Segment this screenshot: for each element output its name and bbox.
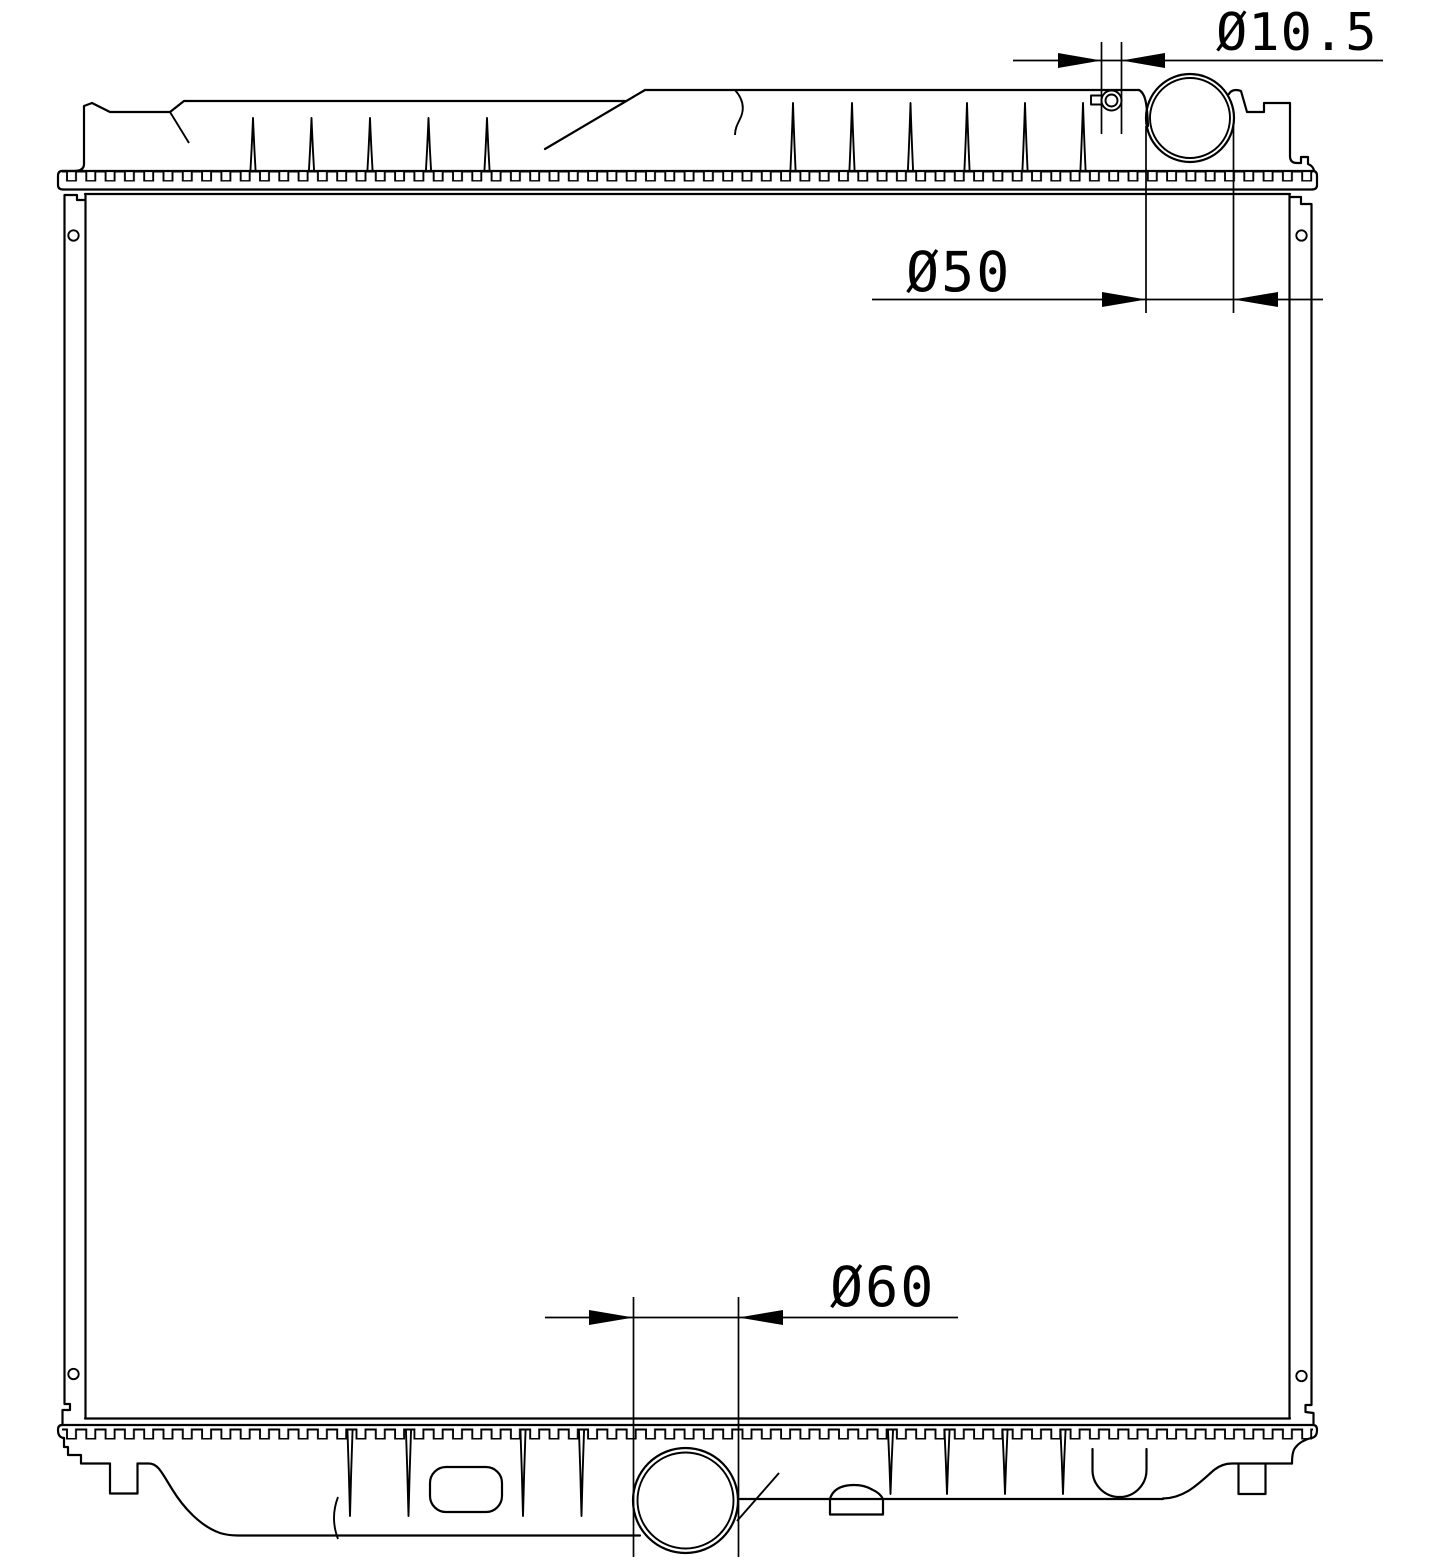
dimension-arrow-left <box>589 1310 634 1325</box>
dimension-arrow-left <box>1058 53 1102 68</box>
dimension-arrow-right <box>739 1310 784 1325</box>
bottom-tank-parting-curve <box>334 1497 338 1539</box>
overflow-hole-circle-outer <box>1102 91 1122 111</box>
u-pocket <box>1093 1449 1147 1497</box>
bottom-tank-right-bottom-curve <box>1163 1464 1292 1499</box>
top-tank-ribs-left <box>250 118 489 171</box>
outlet-port-circle-outer <box>633 1448 738 1553</box>
top-tank-mold-line <box>170 112 189 143</box>
top-tank-left-profile <box>84 101 625 164</box>
bracket-left-profile <box>63 195 86 1424</box>
top-tank-parting-curve <box>735 90 743 135</box>
bottom-tank-left-bottom-curve <box>138 1464 641 1536</box>
dimension-label-overflow-hole: Ø10.5 <box>1216 3 1378 63</box>
bottom-tank-oval-hole <box>430 1467 502 1512</box>
outlet-port-circle-inner <box>638 1453 734 1549</box>
radiator-drawing: Ø10.5 Ø50 Ø60 <box>0 0 1445 1563</box>
bracket-right-top-hole <box>1296 230 1306 240</box>
overflow-tab <box>1091 96 1101 105</box>
top-crimp-teeth <box>62 171 1313 182</box>
radiator-core <box>85 194 1290 1419</box>
side-bracket-right <box>1290 197 1314 1424</box>
bottom-tank-right-foot <box>1239 1464 1266 1495</box>
bracket-left-bottom-hole <box>68 1369 78 1379</box>
dimension-arrow-left <box>1102 292 1146 307</box>
top-tank <box>58 74 1317 190</box>
bottom-tank-right-profile <box>1292 1438 1311 1464</box>
bottom-tank <box>58 1425 1317 1553</box>
dimension-arrow-right <box>1234 292 1279 307</box>
drawing-sheet: Ø10.5 Ø50 Ø60 <box>0 0 1445 1563</box>
bracket-right-profile <box>1290 197 1314 1424</box>
bottom-tank-left-profile <box>64 1438 110 1464</box>
outlet-port-diagonal-line <box>737 1473 779 1521</box>
filler-neck-circle-inner <box>1150 78 1230 158</box>
dimension-outlet-port: Ø60 <box>545 1255 958 1557</box>
top-tank-right-profile <box>1229 90 1314 171</box>
bracket-left-top-hole <box>68 230 78 240</box>
dimension-arrow-right <box>1122 53 1166 68</box>
bottom-crimp-teeth <box>62 1429 1313 1440</box>
dimension-filler-neck: Ø50 <box>872 126 1323 313</box>
dimension-overflow-hole: Ø10.5 <box>1013 3 1383 134</box>
filler-neck-circle-outer <box>1146 74 1234 162</box>
top-tank-ribs-right <box>790 103 1085 171</box>
overflow-hole-circle-inner <box>1106 95 1118 107</box>
dimension-label-outlet-port: Ø60 <box>830 1255 935 1319</box>
dimension-label-filler-neck: Ø50 <box>906 240 1011 304</box>
side-bracket-left <box>63 195 86 1424</box>
bottom-tank-left-foot <box>110 1464 138 1494</box>
top-tank-step-diagonal <box>545 90 645 149</box>
bottom-tank-ribs-left <box>347 1429 584 1516</box>
bracket-right-bottom-hole <box>1296 1371 1306 1381</box>
